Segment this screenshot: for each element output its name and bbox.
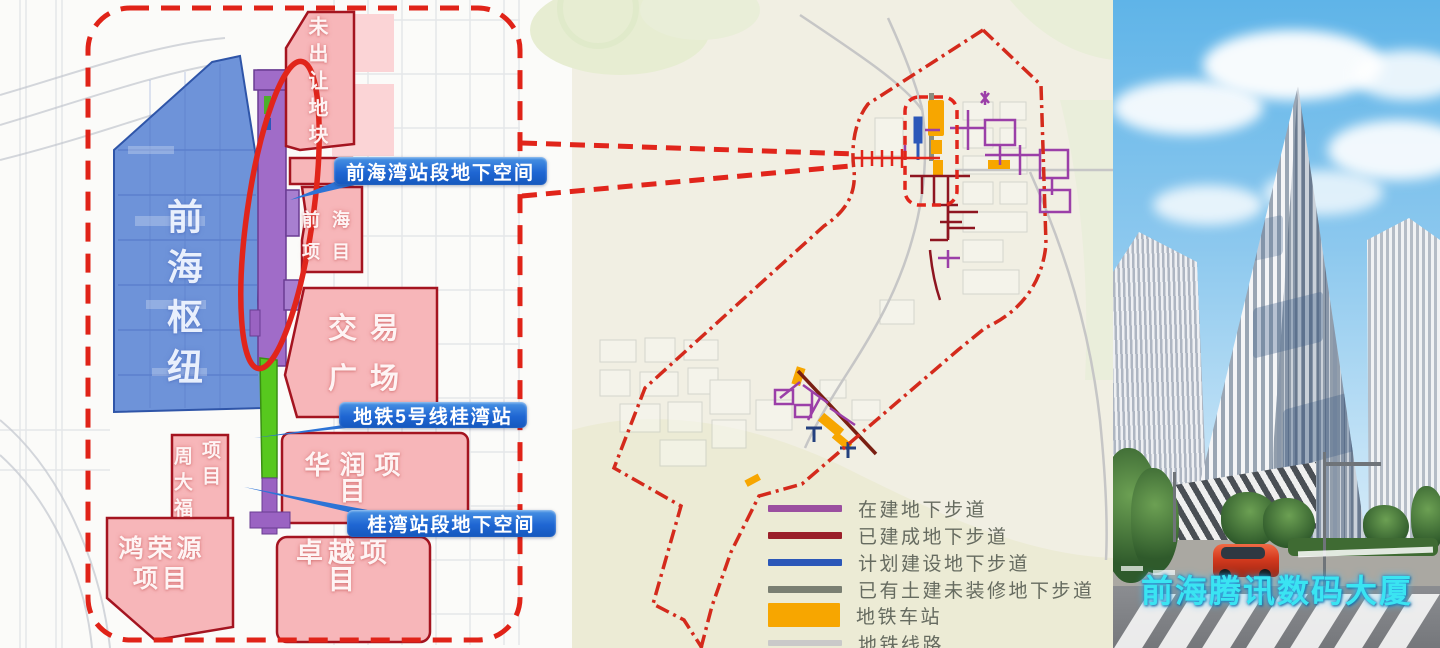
car-window [1221, 547, 1265, 559]
metro-line5-strip [260, 358, 277, 478]
legend-row-planned: 计划建设地下步道 [768, 551, 1030, 573]
legend-row-construction: 在建地下步道 [768, 497, 987, 519]
glass-reflection [1233, 215, 1283, 266]
traffic-pole-arm [1323, 462, 1381, 466]
callout-guiwan-station: 桂湾站段地下空间 [347, 510, 556, 537]
hongrongyuan-line1: 鸿荣源 [104, 534, 220, 564]
slide: 前海枢纽 未出让地块 前海 项目 交易 广场 周大福 项目 华润项目 卓越项目 … [0, 0, 1440, 648]
legend-swatch-construction [768, 505, 842, 512]
legend-swatch-planned [768, 559, 842, 566]
legend-swatch-unfinished [768, 586, 842, 593]
cloud [1353, 50, 1440, 100]
legend-label: 在建地下步道 [858, 495, 987, 522]
callout-qianhaiwan-station: 前海湾站段地下空间 [334, 157, 547, 185]
chow-tai-fook-label2: 项目 [200, 440, 219, 492]
hongrongyuan-label: 鸿荣源 项目 [104, 534, 220, 594]
qianhai-project-line2: 项目 [302, 236, 362, 268]
trading-plaza-line1: 交易 [302, 304, 438, 354]
qianhai-project-line1: 前海 [302, 204, 362, 236]
unsold-zone-label: 未出让地块 [306, 16, 326, 151]
qianhai-project-label: 前海 项目 [302, 204, 362, 268]
legend-label: 地铁线路 [858, 630, 944, 648]
china-resources-label: 华润项目 [291, 452, 423, 504]
tree [1131, 468, 1179, 573]
legend-row-metro-line: 地铁线路 [768, 632, 944, 648]
legend-swatch-built [768, 532, 842, 539]
legend-row-station: 地铁车站 [768, 602, 942, 628]
hongrongyuan-line2: 项目 [104, 564, 220, 594]
legend-label: 地铁车站 [856, 602, 942, 629]
legend-row-unfinished: 已有土建未装修地下步道 [768, 578, 1095, 600]
legend-label: 计划建设地下步道 [858, 549, 1030, 576]
callout-metro-line5-guiwan: 地铁5号线桂湾站 [339, 402, 527, 428]
legend-label: 已建成地下步道 [858, 522, 1009, 549]
photo-caption: 前海腾讯数码大厦 [1127, 566, 1427, 612]
hub-zone-label: 前海枢纽 [164, 198, 200, 398]
street-pole [1173, 472, 1176, 542]
cloud [1153, 185, 1263, 225]
zhuoyue-label: 卓越项目 [281, 540, 407, 594]
building-photo: 前海腾讯数码大厦 [1113, 0, 1440, 648]
chow-tai-fook-label: 周大福 [172, 446, 191, 524]
legend-swatch-metro-line [768, 640, 842, 646]
trading-plaza-line2: 广场 [302, 354, 438, 404]
legend-swatch-station [768, 603, 840, 627]
trading-plaza-label: 交易 广场 [302, 304, 438, 404]
legend-row-built: 已建成地下步道 [768, 524, 1009, 546]
legend-label: 已有土建未装修地下步道 [858, 576, 1095, 603]
